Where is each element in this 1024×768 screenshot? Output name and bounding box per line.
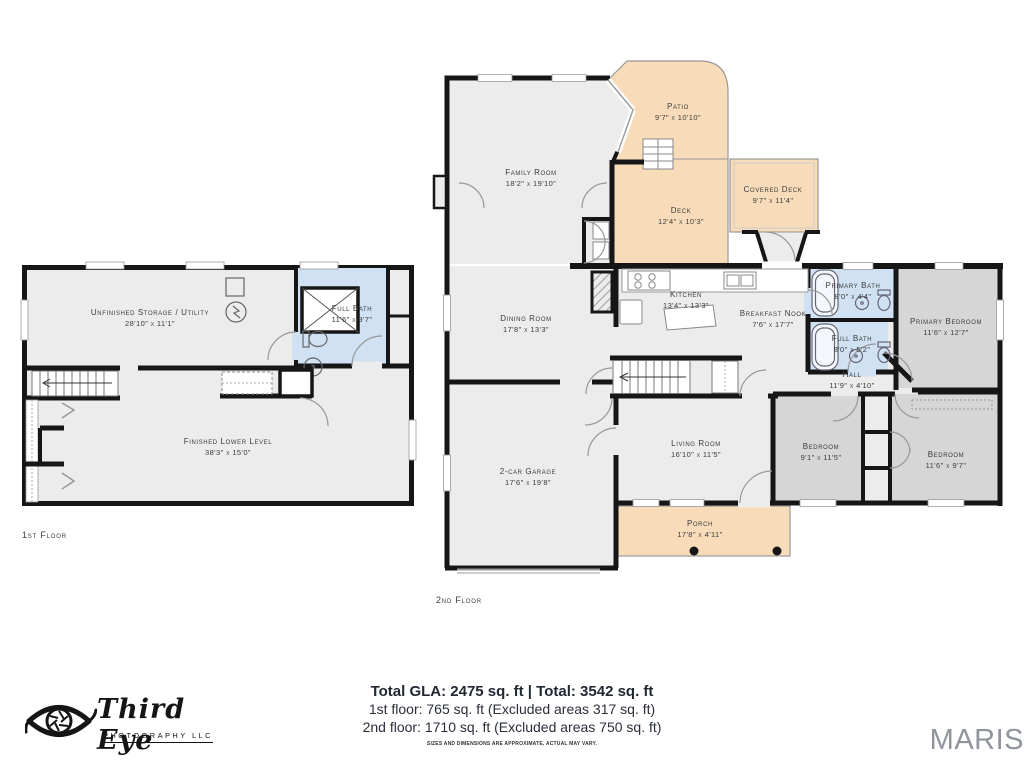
room-label-bedroom-1: Bedroom 9'1" x 11'5" [801,441,842,463]
room-label-porch: Porch 17'8" x 4'11" [677,518,722,540]
room-label-dining-room: Dining Room 17'8" x 13'3" [500,313,551,335]
floorplan-page: Unfinished Storage / Utility 28'10" x 11… [0,0,1024,768]
room-label-deck: Deck 12'4" x 10'3" [658,205,704,227]
mls-logo: MARIS [930,724,1024,757]
eye-camera-icon [25,692,97,750]
floor1-label: 1st Floor [22,530,67,540]
room-label-garage: 2-car Garage 17'6" x 19'8" [500,466,556,488]
photographer-name-script: Third Eye [97,694,240,756]
stairs-icon-floor2 [613,361,738,394]
room-label-full-bath-floor1: Full Bath 11'6" x 9'7" [332,303,373,325]
room-label-primary-bedroom: Primary Bedroom 11'6" x 12'7" [910,316,982,338]
room-label-breakfast-nook: Breakfast Nook 7'6" x 17'7" [740,308,806,330]
stairs-icon-patio [643,139,673,169]
room-label-hall: Hall 11'9" x 4'10" [829,369,874,391]
stairs-icon-floor1 [32,371,118,396]
room-label-lower-level: Finished Lower Level 38'3" x 15'0" [184,436,273,458]
room-label-living-room: Living Room 16'10" x 11'5" [671,438,721,460]
room-label-full-bath-floor2: Full Bath 8'0" x 5'2" [832,333,872,355]
room-label-covered-deck: Covered Deck 9'7" x 11'4" [744,184,803,206]
room-label-bedroom-2: Bedroom 11'6" x 9'7" [926,449,967,471]
photographer-logo: Third Eye PHOTOGRAPHY LLC [25,692,240,754]
floor2-label: 2nd Floor [436,595,482,605]
room-label-storage-utility: Unfinished Storage / Utility 28'10" x 11… [91,307,209,329]
room-label-patio: Patio 9'7" x 10'10" [655,101,701,123]
room-label-family-room: Family Room 18'2" x 19'10" [505,167,556,189]
room-label-primary-bath: Primary Bath 8'0" x 4'4" [826,280,881,302]
garage-door [457,570,600,574]
photographer-subtitle: PHOTOGRAPHY LLC [103,731,213,743]
floor1-plan [21,262,416,504]
room-label-kitchen: Kitchen 13'4" x 13'3" [663,289,709,311]
